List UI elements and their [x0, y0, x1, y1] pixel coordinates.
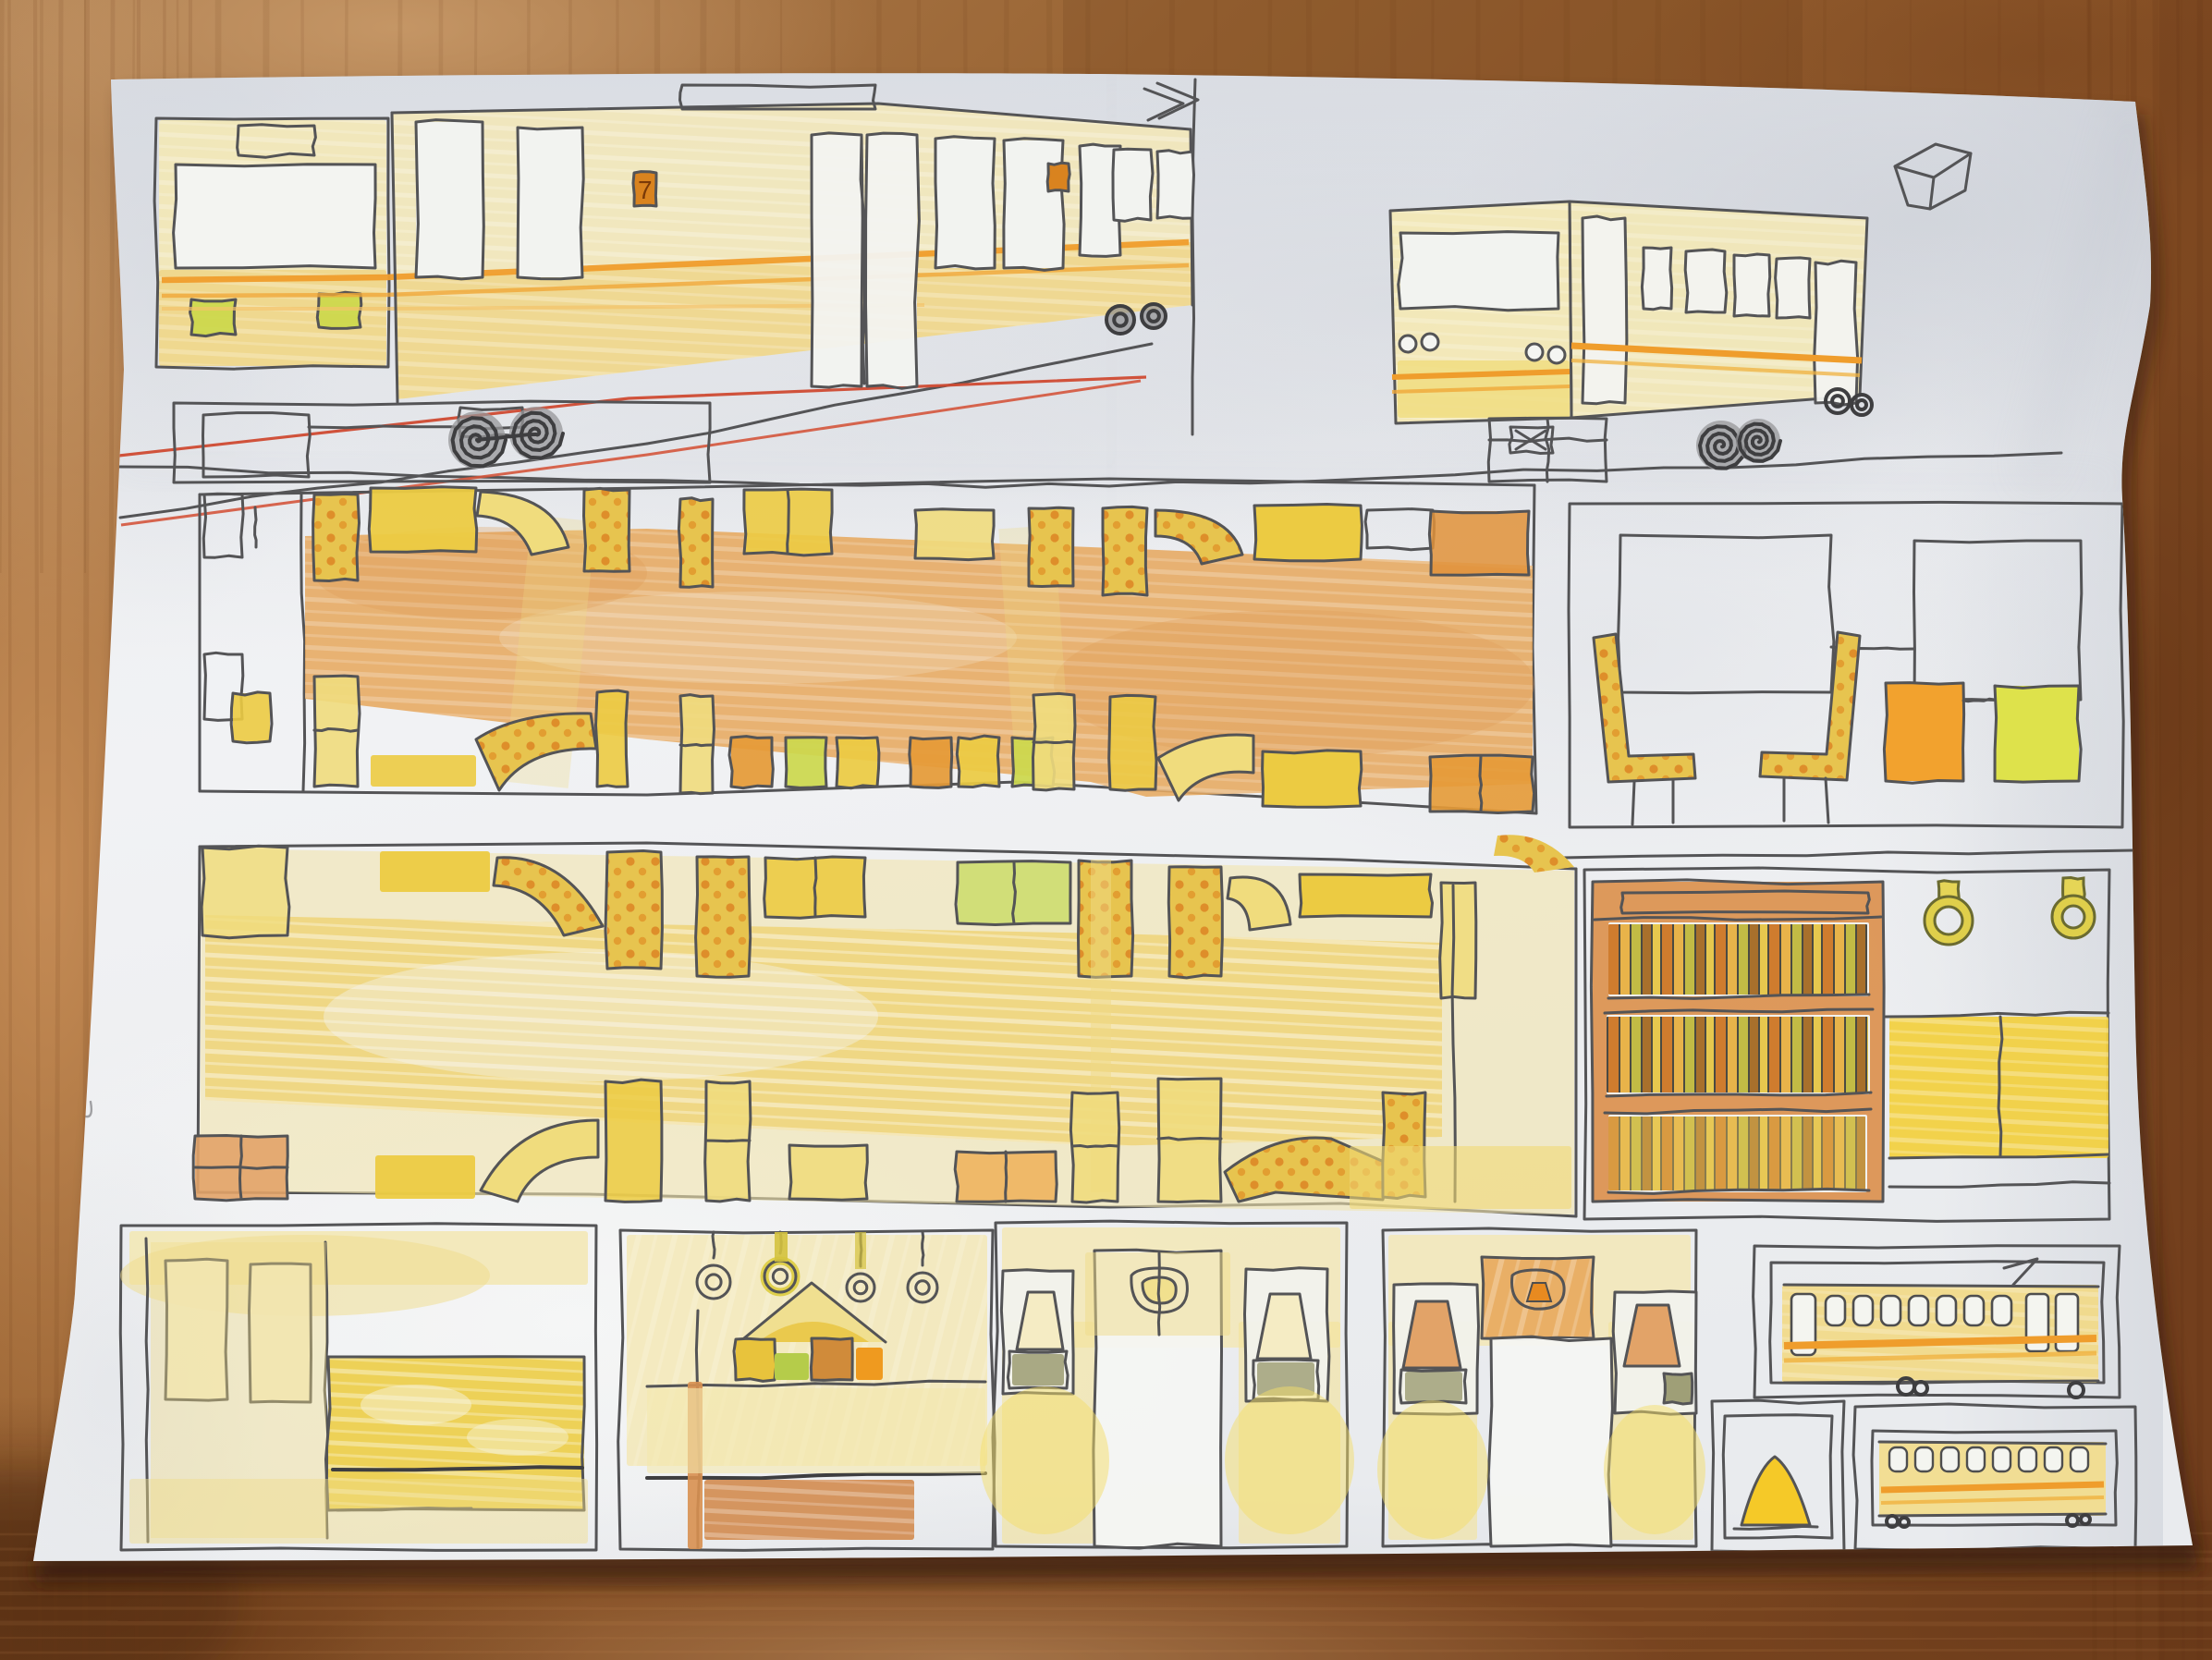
svg-text:7: 7: [638, 176, 653, 204]
